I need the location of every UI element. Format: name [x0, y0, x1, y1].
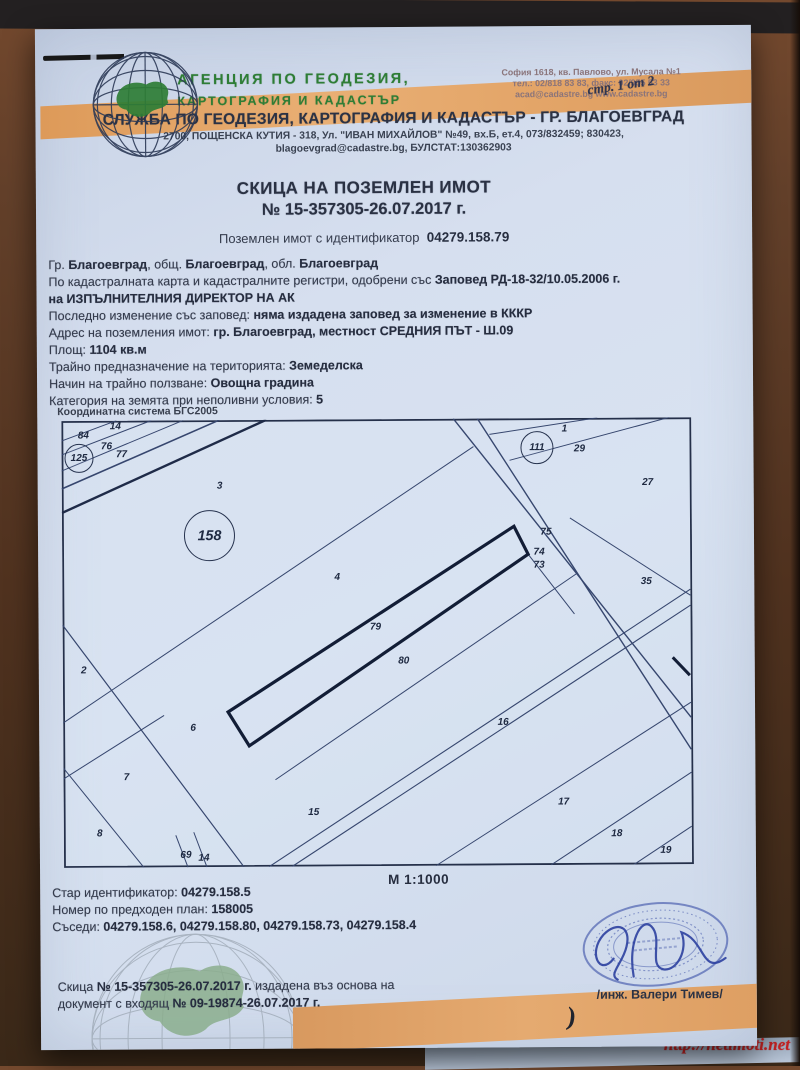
issuance-block: Скица № 15-357305-26.07.2017 г. издадена…: [58, 977, 395, 1013]
parcel-label-circled: 158: [184, 510, 235, 561]
cadastral-map: 8414767712531581111292775747335479802678…: [61, 417, 694, 868]
parcel-label: 4: [334, 572, 340, 583]
document-paper: АГЕНЦИЯ ПО ГЕОДЕЗИЯ, КАРТОГРАФИЯ И КАДАС…: [35, 25, 757, 1050]
signatory-name: /инж. Валери Тимев/: [541, 987, 723, 1002]
parcel-label: 73: [534, 560, 545, 571]
property-id-line: Поземлен имот с идентификатор 04279.158.…: [35, 228, 722, 247]
parcel-label: 29: [574, 443, 585, 454]
parcel-label: 14: [110, 421, 121, 432]
parcel-label: 2: [81, 665, 87, 676]
property-id-label: Поземлен имот с идентификатор: [219, 230, 420, 246]
parcel-label: 80: [398, 655, 409, 666]
agency-globe-logo-icon: [83, 38, 208, 167]
parcel-label: 84: [78, 430, 89, 441]
parcel-label: 14: [198, 853, 209, 864]
document-title: СКИЦА НА ПОЗЕМЛЕН ИМОТ: [35, 176, 722, 200]
parcel-label: 15: [308, 807, 319, 818]
parcel-label: 1: [562, 423, 568, 434]
parcel-label: 7: [124, 772, 130, 783]
hq-address-line1: София 1618, кв. Павлово, ул. Мусала №1: [475, 66, 707, 78]
bulgaria-map-shape: [116, 82, 168, 117]
parcel-label: 35: [641, 576, 652, 587]
document-number: № 15-357305-26.07.2017 г.: [35, 198, 722, 221]
parcel-label-circled: 125: [64, 444, 93, 473]
parcel-labels-layer: 8414767712531581111292775747335479802678…: [61, 417, 694, 868]
parcel-label: 8: [97, 828, 103, 839]
parcel-label: 69: [180, 850, 191, 861]
agency-name-line2: КАРТОГРАФИЯ И КАДАСТЪР: [177, 93, 401, 108]
agency-name-line1: АГЕНЦИЯ ПО ГЕОДЕЗИЯ,: [177, 71, 410, 88]
parcel-label: 74: [533, 547, 544, 558]
text-line: Скица № 15-357305-26.07.2017 г. издадена…: [58, 977, 395, 996]
parcel-label: 75: [540, 527, 551, 538]
parcel-label: 79: [370, 622, 381, 633]
photo-of-document: { "photo": { "watermark": "http://netimo…: [0, 0, 800, 1066]
parcel-label: 27: [642, 477, 653, 488]
parcel-label: 6: [190, 723, 196, 734]
parcel-label: 76: [101, 441, 112, 452]
property-id-value: 04279.158.79: [427, 229, 510, 245]
parcel-label-circled: 111: [520, 431, 553, 464]
parcel-label: 77: [116, 449, 127, 460]
property-details-block: Гр. Благоевград, общ. Благоевград, обл. …: [48, 254, 621, 410]
parcel-label: 16: [498, 717, 509, 728]
photo-right-shadow: [790, 0, 800, 1066]
parcel-label: 19: [660, 845, 671, 856]
text-line: По кадастралната карта и кадастралните р…: [48, 271, 620, 291]
parcel-label: 17: [558, 796, 569, 807]
text-line: документ с входящ № 09-19874-26.07.2017 …: [58, 994, 395, 1013]
parcel-label: 18: [611, 828, 622, 839]
parcel-label: 3: [217, 481, 223, 492]
coordinate-system-label: Координатна система БГС2005: [57, 405, 218, 418]
